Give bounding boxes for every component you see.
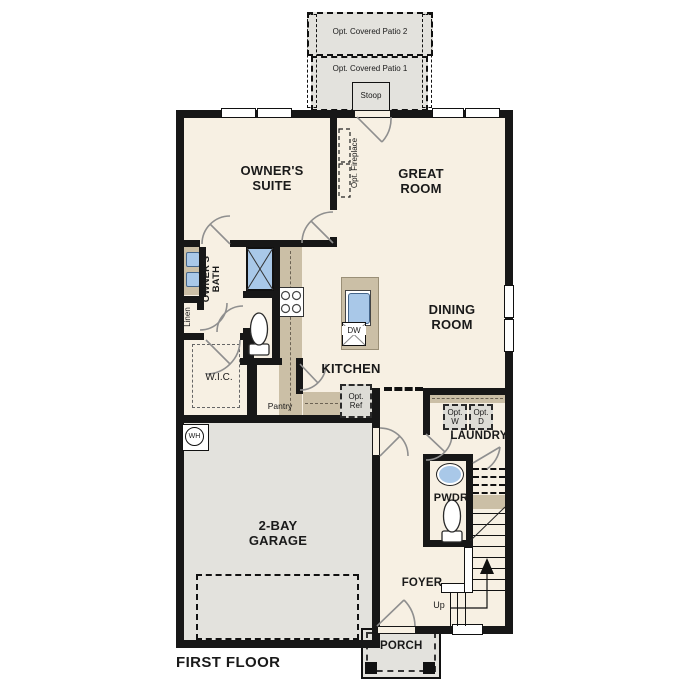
label-pwdr: PWDR [431,492,471,505]
label-owners-bath: OWNER'S BATH [202,251,224,307]
floor-plan: Opt. Ref Opt. W Opt. D WH [0,0,687,687]
stove-burners [282,292,301,313]
front-door-arc [404,600,415,626]
label-owners-suite: OWNER'S SUITE [226,164,318,194]
label-laundry: LAUNDRY [448,430,510,443]
label-dining-room: DINING ROOM [422,303,482,333]
page-title: FIRST FLOOR [176,654,306,671]
label-patio2: Opt. Covered Patio 2 [308,27,432,36]
garage-entry-door-leaf [380,436,400,456]
label-kitchen: KITCHEN [320,362,382,377]
label-stoop: Stoop [352,91,390,100]
stoop-door-arc [382,117,391,142]
wic-door-leaf [206,340,230,364]
bath-door-leaf [210,224,230,244]
pantry-door-leaf [300,364,318,383]
up-arrow-icon [480,558,494,574]
label-foyer: FOYER [400,577,444,590]
label-linen: Linen [183,300,193,334]
label-porch: PORCH [380,640,422,653]
toilet-nook-door-arc [217,306,243,332]
label-patio1: Opt. Covered Patio 1 [312,64,428,73]
label-garage: 2-BAY GARAGE [238,519,318,549]
label-great-room: GREAT ROOM [391,167,451,197]
toilet-pwdr [442,500,462,542]
label-pantry: Pantry [261,402,299,412]
toilet-bath [249,313,269,355]
suite-door-leaf [311,221,333,243]
label-up: Up [429,600,449,610]
label-wic: W.I.C. [196,372,242,384]
label-opt-fireplace: Opt. Fireplace [350,123,362,203]
shower-x [247,248,273,290]
label-dishwasher: DW [342,326,366,335]
plan-linework [0,0,687,687]
laundry-door-leaf [426,434,445,452]
front-door-leaf [377,600,404,626]
opt-fireplace-boxes [339,129,350,197]
